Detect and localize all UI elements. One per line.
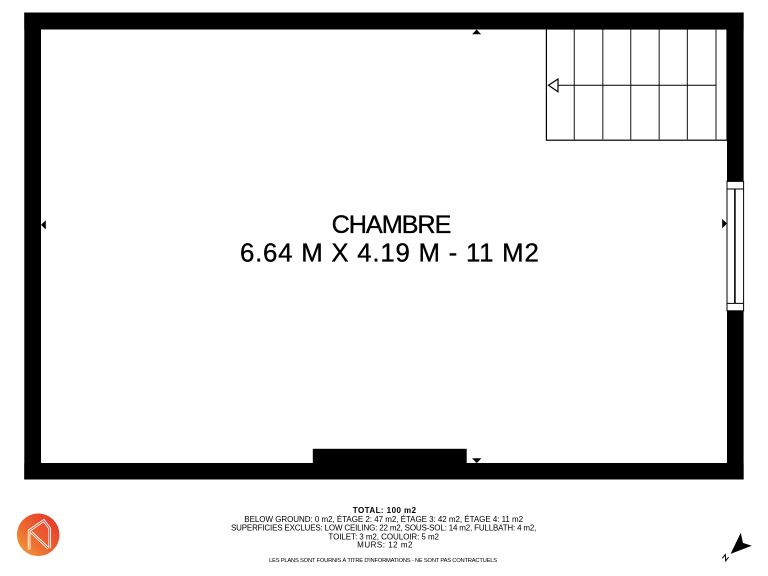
svg-text:TOTAL: 100 m2: TOTAL: 100 m2 (353, 506, 417, 515)
svg-text:CHAMBRE: CHAMBRE (332, 211, 452, 239)
svg-text:MURS: 12 m2: MURS: 12 m2 (357, 541, 413, 550)
svg-text:SUPERFICIES EXCLUES: LOW CEILI: SUPERFICIES EXCLUES: LOW CEILING: 22 m2,… (231, 524, 536, 533)
svg-text:LES PLANS SONT FOURNIS À TITRE: LES PLANS SONT FOURNIS À TITRE D'INFORMA… (269, 557, 497, 564)
svg-text:6.64 M X 4.19 M - 11 M2: 6.64 M X 4.19 M - 11 M2 (240, 239, 539, 267)
svg-text:BELOW GROUND: 0 m2, ÉTAGE 2: 4: BELOW GROUND: 0 m2, ÉTAGE 2: 47 m2, ÉTAG… (244, 515, 523, 524)
